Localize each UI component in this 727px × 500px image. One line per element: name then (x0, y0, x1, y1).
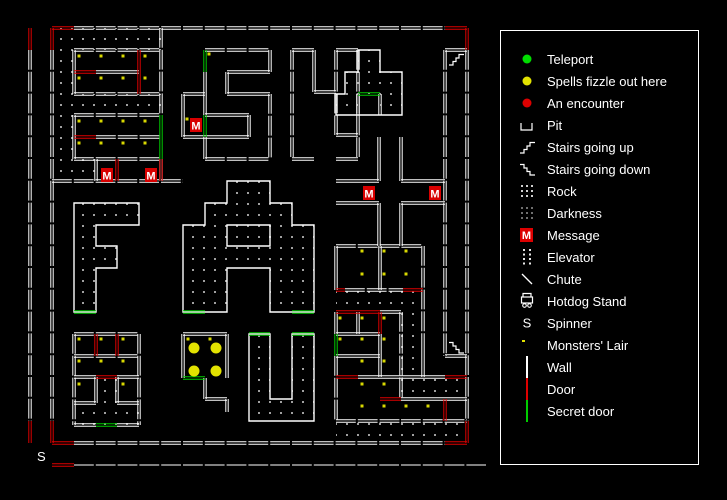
legend-item-hotdog: Hotdog Stand (511, 290, 698, 312)
legend-item-message: MMessage (511, 224, 698, 246)
door-icon (511, 378, 543, 400)
teleport-icon (511, 48, 543, 70)
legend-item-label: Wall (547, 360, 572, 375)
legend-item-teleport: Teleport (511, 48, 698, 70)
legend-item-label: Spells fizzle out here (547, 74, 667, 89)
legend-item-secret: Secret door (511, 400, 698, 422)
stairs-up-marker (449, 55, 464, 66)
encounter-icon (511, 92, 543, 114)
rock-icon (511, 180, 543, 202)
elevator-icon (511, 246, 543, 268)
legend-item-label: Darkness (547, 206, 602, 221)
legend-item-label: Stairs going down (547, 162, 650, 177)
message-marker: M (101, 168, 113, 183)
legend-item-label: Stairs going up (547, 140, 634, 155)
legend-item-label: Monsters' Lair (547, 338, 628, 353)
darkness-icon (511, 202, 543, 224)
rock-areas (52, 28, 467, 443)
legend-item-wall: Wall (511, 356, 698, 378)
pit-icon (511, 114, 543, 136)
message-marker: M (429, 186, 441, 201)
message-marker: M (190, 118, 202, 133)
stairs-down-icon (511, 158, 543, 180)
chute-icon (511, 268, 543, 290)
wall-icon (511, 356, 543, 378)
legend-item-label: Teleport (547, 52, 593, 67)
stairs-down-marker (449, 343, 464, 354)
fizzle-icon (511, 70, 543, 92)
lair-icon (511, 334, 543, 356)
dungeon-map: MMMMMS (0, 0, 500, 500)
svg-text:M: M (522, 230, 531, 242)
legend-item-stairs-up: Stairs going up (511, 136, 698, 158)
legend-item-encounter: An encounter (511, 92, 698, 114)
svg-text:M: M (102, 171, 111, 183)
legend-item-door: Door (511, 378, 698, 400)
legend-panel: TeleportSpells fizzle out hereAn encount… (500, 30, 699, 465)
legend-item-label: Message (547, 228, 600, 243)
svg-text:M: M (364, 189, 373, 201)
message-marker: M (363, 186, 375, 201)
legend-item-rock: Rock (511, 180, 698, 202)
spinner-icon: S (511, 312, 543, 334)
legend-item-spinner: SSpinner (511, 312, 698, 334)
legend-item-elevator: Elevator (511, 246, 698, 268)
legend-item-fizzle: Spells fizzle out here (511, 70, 698, 92)
svg-text:M: M (146, 171, 155, 183)
legend-item-label: Secret door (547, 404, 614, 419)
message-icon: M (511, 224, 543, 246)
legend-item-label: An encounter (547, 96, 624, 111)
legend-item-label: Chute (547, 272, 582, 287)
hotdog-icon (511, 290, 543, 312)
legend-item-label: Pit (547, 118, 562, 133)
legend-item-pit: Pit (511, 114, 698, 136)
legend-item-label: Hotdog Stand (547, 294, 627, 309)
legend-item-label: Elevator (547, 250, 595, 265)
secret-icon (511, 400, 543, 422)
svg-text:S: S (523, 316, 532, 331)
legend-item-stairs-down: Stairs going down (511, 158, 698, 180)
legend-item-label: Spinner (547, 316, 592, 331)
dungeon-mapper-screen: MMMMMS TeleportSpells fizzle out hereAn … (0, 0, 727, 500)
svg-text:M: M (191, 121, 200, 133)
legend-item-label: Door (547, 382, 575, 397)
legend-item-label: Rock (547, 184, 577, 199)
legend-item-darkness: Darkness (511, 202, 698, 224)
message-marker: M (145, 168, 157, 183)
svg-text:M: M (430, 189, 439, 201)
legend-item-lair: Monsters' Lair (511, 334, 698, 356)
spinner-marker: S (37, 449, 46, 464)
legend-item-chute: Chute (511, 268, 698, 290)
stairs-up-icon (511, 136, 543, 158)
